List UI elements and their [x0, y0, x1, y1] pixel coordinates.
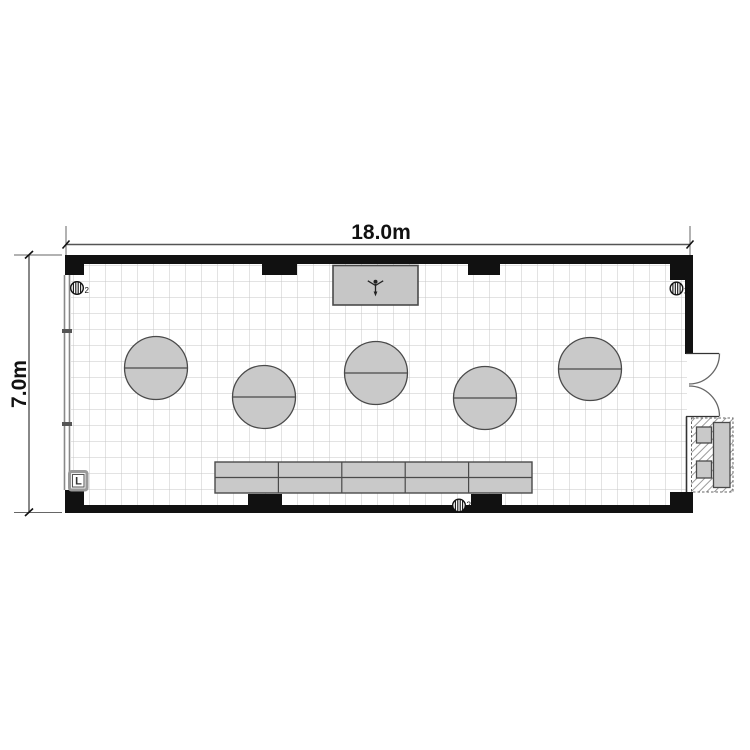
service-unit-small-1: [697, 427, 712, 443]
outlet-icon: [670, 282, 683, 295]
column-bottom-a: [248, 494, 282, 513]
dimension-top: 18.0m: [63, 221, 694, 258]
outlet-count-label: 2: [684, 287, 689, 296]
floor-plan: 18.0m 7.0m: [0, 0, 750, 750]
wall-bottom: [65, 505, 693, 513]
dimension-label-depth: 7.0m: [8, 360, 31, 408]
light-switch: L: [70, 472, 88, 491]
outlet-icon: [71, 282, 84, 295]
counter-tables: [215, 462, 532, 493]
column-top-left: [65, 255, 84, 275]
column-bottom-b: [471, 494, 502, 513]
service-area: [692, 418, 734, 492]
round-table-5: [559, 338, 622, 401]
column-bottom-right: [670, 492, 693, 513]
door-swing-icon: [689, 386, 720, 417]
wall-top: [65, 255, 693, 264]
dimension-label-width: 18.0m: [351, 221, 411, 244]
screen-board: [333, 266, 418, 306]
outlet-count-label: 2: [467, 501, 472, 510]
double-door: [686, 354, 720, 417]
window-mullion: [62, 422, 72, 426]
round-table-1: [125, 337, 188, 400]
round-table-4: [454, 367, 517, 430]
dimension-left: 7.0m: [8, 251, 62, 516]
column-top-a: [262, 255, 297, 275]
service-unit-tall: [714, 423, 731, 488]
round-table-2: [233, 366, 296, 429]
service-unit-small-2: [697, 461, 712, 478]
outlet-icon: [453, 499, 466, 512]
door-swing-icon: [689, 354, 720, 385]
column-top-b: [468, 255, 500, 275]
outlet-count-label: 2: [85, 286, 90, 295]
column-top-right: [670, 255, 693, 280]
round-table-3: [345, 342, 408, 405]
window-mullion: [62, 329, 72, 333]
column-bottom-left: [65, 490, 84, 513]
switch-label: L: [75, 476, 82, 488]
floor-plan-drawing: 18.0m 7.0m: [0, 0, 750, 750]
window-wall-left: [62, 275, 72, 490]
